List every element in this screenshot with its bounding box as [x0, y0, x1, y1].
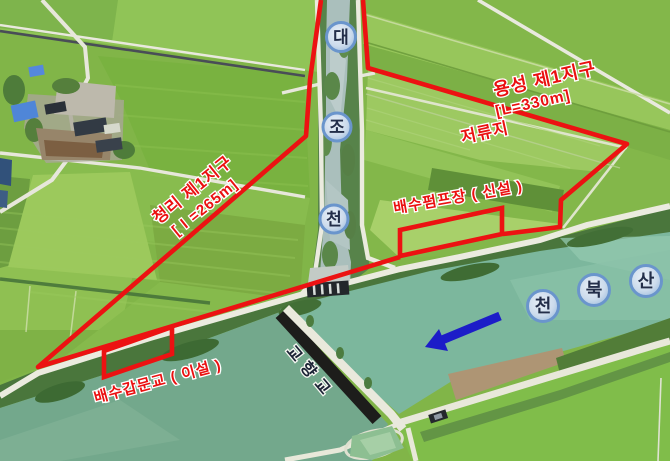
svg-text:북: 북 [586, 280, 603, 300]
svg-text:천: 천 [326, 210, 342, 229]
svg-text:조: 조 [329, 118, 345, 137]
svg-text:대: 대 [333, 28, 349, 47]
svg-text:산: 산 [638, 271, 655, 291]
svg-text:천: 천 [535, 296, 552, 316]
